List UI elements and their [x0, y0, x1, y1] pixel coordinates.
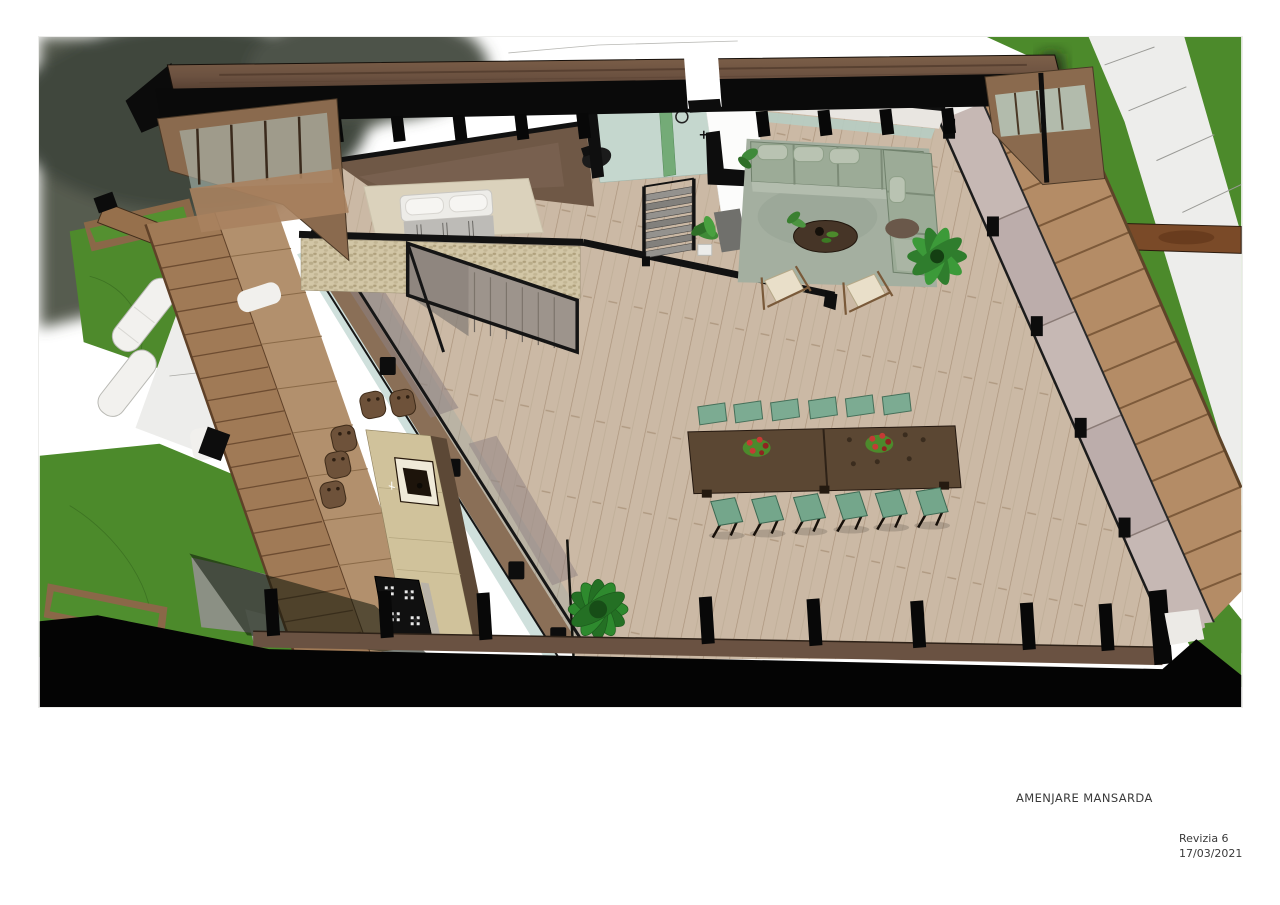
- floor-plan-render: [38, 36, 1243, 708]
- floor-plan-render-svg: [39, 37, 1242, 707]
- pouf: [885, 218, 919, 238]
- revision-label: Revizia 6: [1179, 831, 1242, 846]
- revision-block: Revizia 6 17/03/2021: [1179, 831, 1242, 861]
- presentation-page: AMENJARE MANSARDA Revizia 6 17/03/2021: [0, 0, 1280, 905]
- drawing-title: AMENJARE MANSARDA: [1016, 791, 1153, 805]
- revision-date: 17/03/2021: [1179, 846, 1242, 861]
